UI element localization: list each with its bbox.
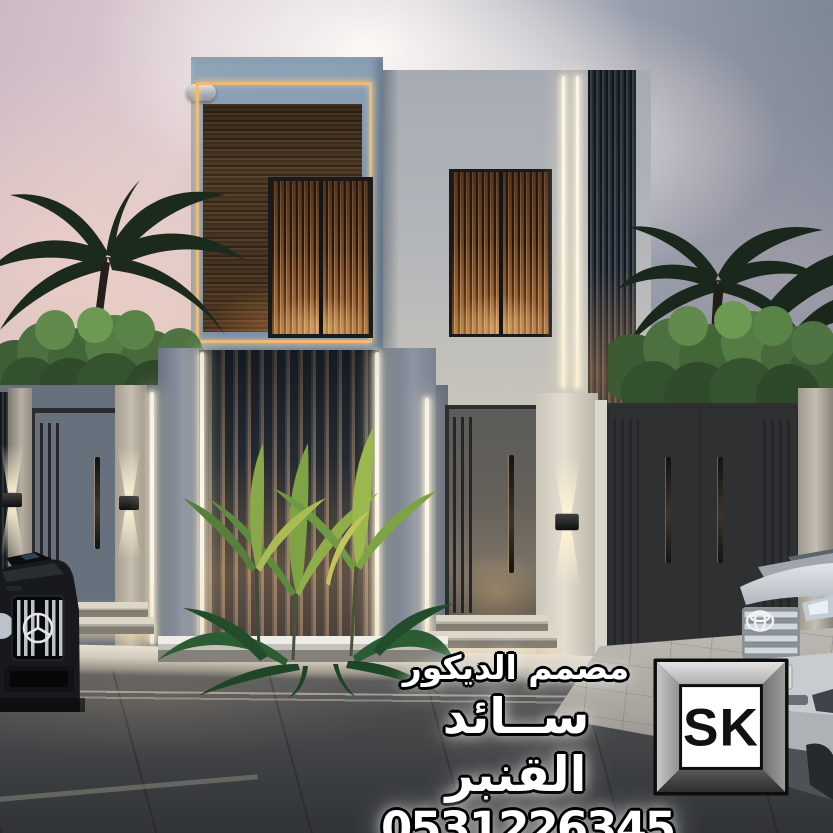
sconce-fixture <box>2 493 22 507</box>
sk-logo-badge: SK <box>652 656 790 798</box>
profession-title: مصمم الديكور <box>381 648 651 688</box>
upper-right-window <box>449 169 552 337</box>
window-mullion <box>499 172 503 334</box>
badge-initials: SK <box>683 699 759 758</box>
garage-gate-left-panel <box>607 406 702 664</box>
wall-sconce <box>552 449 583 595</box>
sconce-downlight <box>552 530 583 593</box>
bumper-mesh <box>10 671 68 687</box>
window-mullion <box>319 181 323 334</box>
sconce-uplight <box>552 451 583 514</box>
sconce-uplight <box>0 440 25 493</box>
gate-slats <box>613 419 639 651</box>
sconce-uplight <box>116 443 142 496</box>
designer-name: ســائد القنبر <box>381 688 651 804</box>
gate-handle <box>718 457 723 563</box>
gate-handle <box>95 457 100 549</box>
upper-left-window <box>268 177 373 338</box>
sconce-fixture <box>119 496 139 510</box>
wall-sconce <box>116 441 142 565</box>
sconce-fixture <box>555 514 579 531</box>
garage-pillar-edge <box>595 400 607 656</box>
villa-render-poster: مصمم الديكور ســائد القنبر 0531226345 SK <box>0 0 833 833</box>
advertisement-text: مصمم الديكور ســائد القنبر 0531226345 <box>381 648 651 833</box>
gate-handle <box>666 457 671 563</box>
sconce-downlight <box>116 510 142 563</box>
phone-number: 0531226345 <box>381 804 651 833</box>
suv-shadow <box>0 698 85 712</box>
wall-sconce <box>0 438 25 562</box>
door-handle <box>509 455 514 573</box>
dark-suv-left <box>0 550 85 712</box>
led-strip-upper-1 <box>562 76 565 388</box>
turn-indicator <box>6 586 22 591</box>
entrance-door <box>445 405 541 621</box>
led-strip-upper-2 <box>576 76 579 388</box>
